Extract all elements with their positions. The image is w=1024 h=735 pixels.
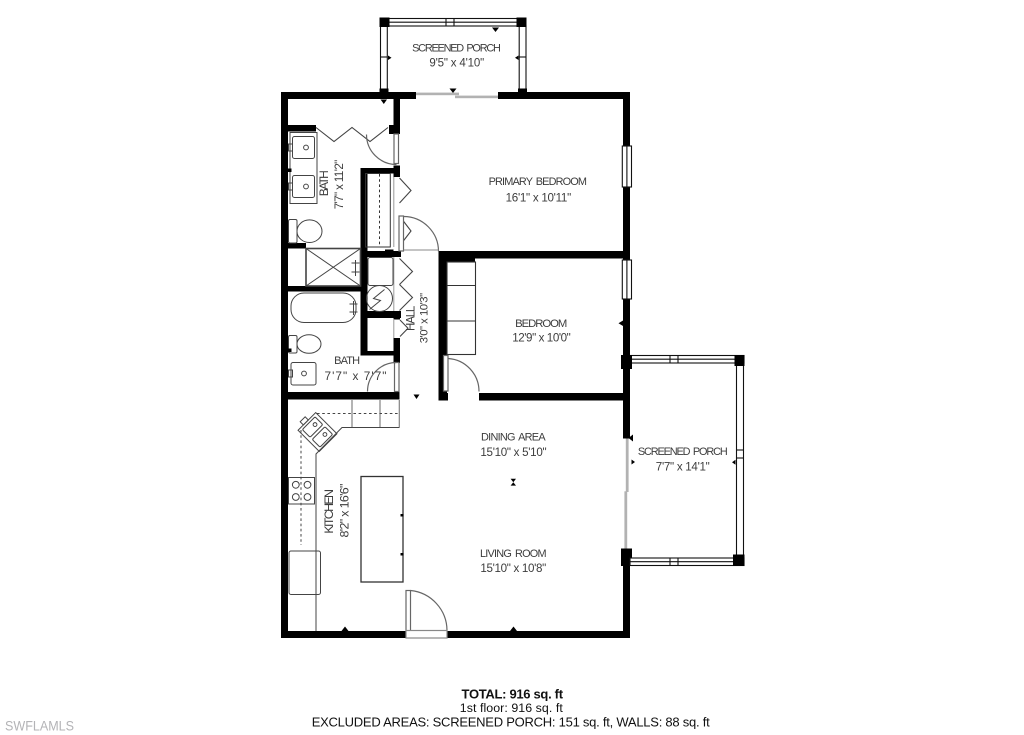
svg-text:TOTAL: 916 sq. ft: TOTAL: 916 sq. ft [462, 687, 564, 702]
svg-text:SCREENED PORCH: SCREENED PORCH [638, 446, 728, 458]
svg-text:8'2" x 16'6": 8'2" x 16'6" [337, 484, 351, 538]
svg-text:HALL: HALL [406, 305, 418, 331]
svg-text:SCREENED PORCH: SCREENED PORCH [412, 43, 501, 55]
svg-text:KITCHEN: KITCHEN [322, 489, 336, 534]
svg-text:BATH: BATH [334, 355, 360, 367]
svg-text:LIVING ROOM: LIVING ROOM [480, 548, 547, 560]
svg-text:3'0" x 10'3": 3'0" x 10'3" [418, 293, 430, 343]
svg-text:7'7" x 11'2": 7'7" x 11'2" [333, 160, 346, 210]
svg-text:16'1" x 10'11": 16'1" x 10'11" [506, 191, 572, 204]
svg-text:1st floor: 916 sq. ft: 1st floor: 916 sq. ft [460, 701, 564, 715]
svg-text:PRIMARY BEDROOM: PRIMARY BEDROOM [489, 176, 587, 188]
svg-text:SWFLAMLS: SWFLAMLS [5, 718, 74, 734]
svg-text:7'7" x 7'7": 7'7" x 7'7" [325, 369, 387, 383]
svg-text:BEDROOM: BEDROOM [515, 318, 567, 330]
svg-text:15'10" x 10'8": 15'10" x 10'8" [480, 562, 546, 575]
svg-text:BATH: BATH [317, 170, 331, 196]
svg-text:12'9" x 10'0": 12'9" x 10'0" [512, 332, 571, 345]
svg-text:15'10" x 5'10": 15'10" x 5'10" [480, 446, 546, 459]
svg-text:DINING AREA: DINING AREA [481, 432, 546, 444]
svg-text:9'5" x 4'10": 9'5" x 4'10" [429, 58, 484, 70]
svg-text:7'7" x 14'1": 7'7" x 14'1" [656, 461, 710, 474]
svg-text:EXCLUDED AREAS: SCREENED PORCH: EXCLUDED AREAS: SCREENED PORCH: 151 sq. … [312, 715, 710, 730]
